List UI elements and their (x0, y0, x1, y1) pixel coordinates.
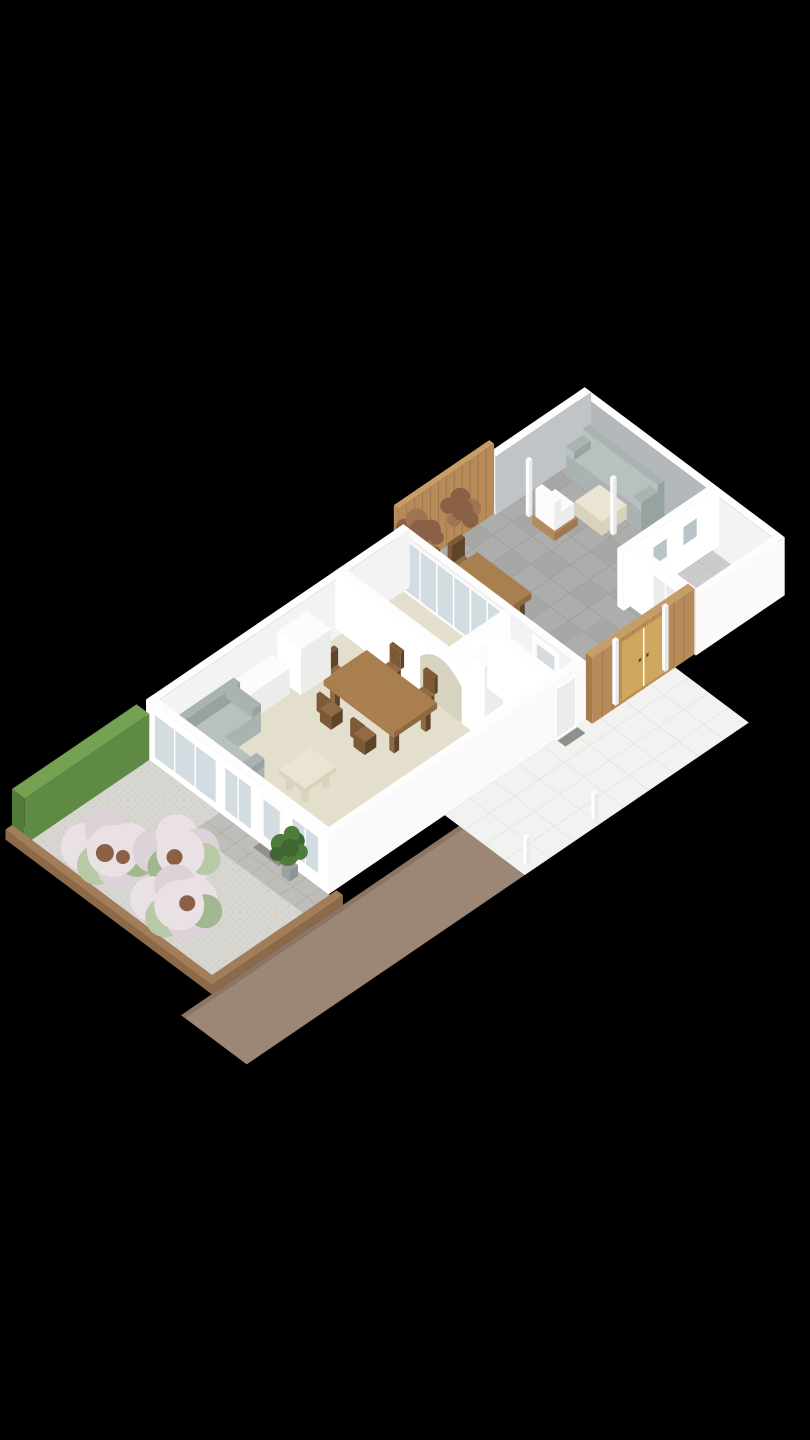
flowering-shrub-3-foliage (154, 880, 204, 930)
tall-cabinet-door-split (315, 642, 316, 683)
gate-post-right-left-face (662, 606, 665, 672)
gate-post-left-front-face (616, 640, 619, 706)
floorplan-viewport (0, 0, 810, 1440)
lounge-post-1-front-face (529, 459, 532, 517)
gate-post-right-front-face (665, 606, 668, 672)
driveway-post-1-left-face (523, 836, 526, 864)
flowering-shrub-1-foliage (116, 850, 130, 864)
garage-lounge-wall-left-face (617, 548, 623, 611)
lounge-post-2-front-face (613, 477, 616, 535)
patio-gate-fence-left-face (586, 653, 592, 724)
lounge-post-2-left-face (610, 477, 613, 535)
dry-plant-2-foliage (451, 499, 473, 521)
entrance-plant-foliage (281, 839, 299, 857)
floorplan-3d-render (0, 0, 810, 1440)
driveway-post-2-left-face (591, 792, 594, 820)
driveway-post-2-front-face (595, 792, 598, 820)
gate-post-left-left-face (612, 639, 615, 705)
flowering-shrub-3-foliage (179, 895, 195, 911)
driveway-post-1-front-face (527, 836, 530, 864)
flowering-shrub-2-foliage (167, 849, 183, 865)
flowering-shrub-1-foliage (96, 844, 114, 862)
lounge-post-1-left-face (526, 459, 529, 517)
house-front-wall-front-face (329, 832, 336, 895)
dining-chair-far-1-back-front-face (401, 650, 404, 669)
dining-chair-far-2-back-front-face (434, 675, 437, 694)
